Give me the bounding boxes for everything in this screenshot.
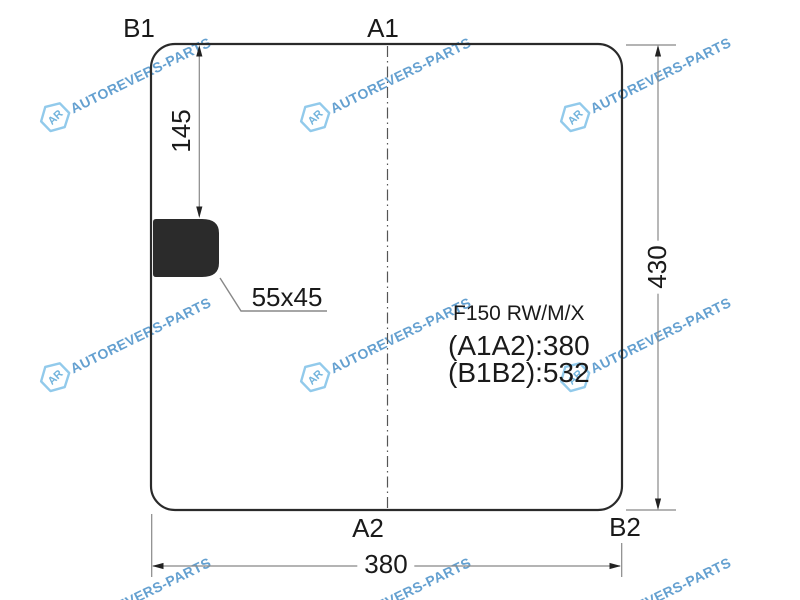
technical-drawing [0, 0, 800, 600]
corner-label-b1: B1 [123, 15, 155, 41]
dim-text-430: 430 [643, 240, 671, 293]
dim-text-380: 380 [357, 550, 414, 578]
arrowhead-down-icon [655, 499, 661, 511]
corner-label-a1: A1 [367, 15, 399, 41]
corner-label-b2: B2 [609, 514, 641, 540]
dim-text-55x45: 55x45 [252, 284, 323, 310]
bracket-shape [153, 219, 219, 277]
arrowhead-up-icon [655, 45, 661, 57]
dim-text-145: 145 [168, 109, 194, 152]
part-dim-b1b2: (B1B2):532 [448, 359, 590, 386]
arrowhead-up-icon [196, 45, 202, 57]
arrowhead-down-icon [196, 207, 202, 219]
corner-label-a2: A2 [352, 515, 384, 541]
glass-diagram-canvas: AR AUTOREVERS-PARTS AR AUTOREVERS-PARTS … [0, 0, 800, 600]
arrowhead-right-icon [610, 563, 622, 569]
glass-outline [151, 44, 622, 510]
part-info-block: F150 RW/M/X (A1A2):380 (B1B2):532 [448, 302, 590, 386]
part-model: F150 RW/M/X [453, 302, 590, 326]
part-dim-a1a2: (A1A2):380 [448, 332, 590, 359]
arrowhead-left-icon [152, 563, 164, 569]
